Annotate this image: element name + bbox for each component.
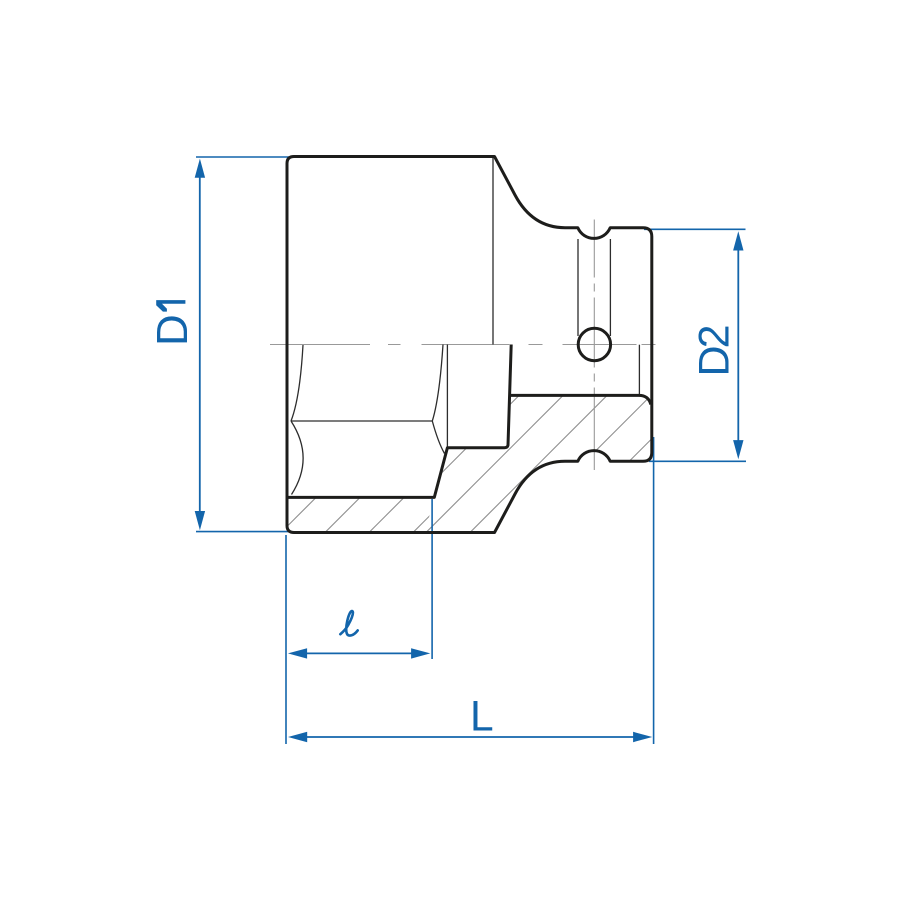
svg-text:D: D bbox=[148, 314, 197, 346]
svg-text:D2: D2 bbox=[691, 325, 739, 377]
svg-text:L: L bbox=[470, 693, 494, 740]
